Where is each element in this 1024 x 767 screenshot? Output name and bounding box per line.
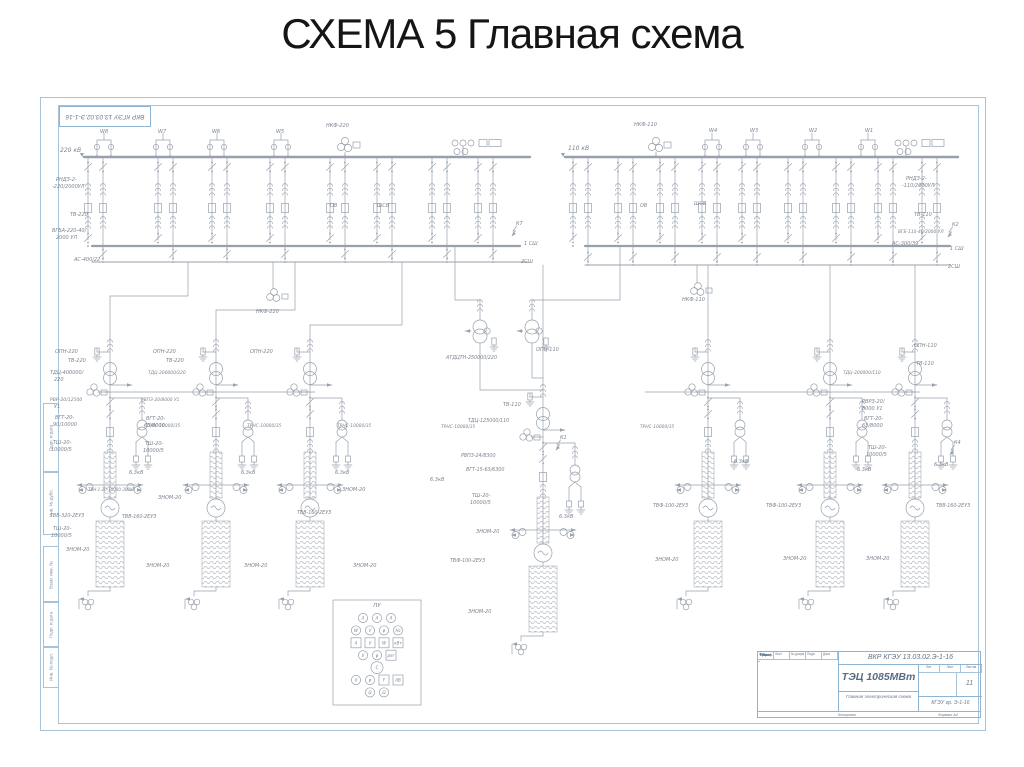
schematic-label: 6.3кВ [857,467,872,473]
schematic-label: ТДЦ-125000/110 [468,418,509,424]
schematic-label: V [362,653,365,658]
schematic-label: ВГТ-15-63/6300 [466,467,504,473]
schematic-label: ОПН-220 [55,349,78,355]
schematic-label: φ [376,653,379,658]
schematic-label: РВРЗ-20/ [862,399,886,405]
schematic-label: ОПН-220 [153,349,176,355]
schematic-label: А [354,640,358,645]
schematic-label: ЗНОМ-20 [342,487,365,493]
autotransformers [465,300,550,351]
schematic-label: -110/2000УЛ [902,183,935,189]
schematic-label: А [389,616,393,621]
schematic-label: Hz [395,628,401,633]
schematic-label: ТВ-220 [166,358,184,364]
schematic-label: Ω [367,690,372,695]
schematic-label: ТВФ-100-2ЕУЗ [450,558,485,564]
schematic-label: 6.3кВ [934,462,949,468]
schematic-label: 6.3кВ [430,477,445,483]
schematic-label: А [375,616,379,621]
schematic-label: F [383,678,386,683]
schematic-label: ТВФ-100-2ЕУЗ [766,503,801,509]
schematic-label: 10000/5 [866,452,887,458]
schematic-label: ТВ-110 [503,402,521,408]
schematic-label: ТВВ-160-2ЕУЗ [297,510,331,516]
schematic-label: ЗНОМ-20 [146,563,169,569]
schematic-label: 10000/5 [470,500,491,506]
sheet-header: Лит.ЛистЛистов [919,665,982,673]
schematic-label: РНДЗ-2- [56,177,77,183]
schematic-label: ТВ-220 [68,358,86,364]
schematic-label: НКФ-110 [682,297,705,303]
schematic-label: ЗНОМ-20 [655,557,678,563]
schematic-label: 1 СШ [524,241,538,247]
schematic-label: ТШ-20- [868,445,887,451]
schematic-label: φ [383,628,386,633]
revision-row: Утв. [758,652,760,662]
schematic-label: ЗНОМ-20 [244,563,267,569]
schematic-label: ЗНОМ-20 [66,547,89,553]
schematic-label: ОПН-110 [914,343,937,349]
schematic-label: ТВН-1-20-10000-300У3 [88,487,135,492]
schematic-label: 63/8000 [144,423,165,429]
schematic-label: ТВВ-160-2ЕУЗ [122,514,156,520]
schematic-label: 6.3кВ [559,514,574,520]
schematic-label: 90/10000 [53,422,77,428]
copied-label: Копировал [838,713,856,717]
object-name: ТЭЦ 1085МВт [839,665,919,691]
schematic-label: W6 [212,129,220,135]
schematic-label: ШСВ [694,201,707,207]
title-block-footer: Копировал Формат А4 [758,711,980,718]
title-block: Изм.Лист№ докум.Подп.Дата Разраб.Пров.Ре… [757,651,981,718]
schematic-label: ЗНОМ-20 [783,556,806,562]
schematic-label: ТВФ-100-2ЕУЗ [653,503,688,509]
schematic-label: 220 кВ [60,147,81,154]
schematic-label: РВР-20/12500 [50,397,82,403]
schematic-label: W8 [100,129,108,135]
schematic-label: ОВ [640,203,648,209]
schematic-label: ВГБ-110-40/2000 УЛ [898,229,944,235]
schematic-label: кВт [394,640,402,645]
schematic-label: 10000/5 [51,447,72,453]
schematic-label: ВГТ-20- [55,415,74,421]
schematic-label: ЗНОМ-20 [158,495,181,501]
schematic-label: ТВ-220 [70,212,88,218]
schematic-label: V [355,678,358,683]
schematic-label: ШСВ [377,203,390,209]
schematic-label: АВ [394,678,401,683]
schematic-label: С [376,665,379,670]
schematic-label: ОПН-220 [250,349,273,355]
feeder-bays [85,156,941,266]
schematic-label: φ [369,678,372,683]
schematic-label: -220/2000УЛ [52,184,85,190]
schematic-label: ВГТ-20- [864,416,883,422]
schematic-label: W7 [158,129,167,135]
schematic-label: ТРНС-10000/35 [337,423,372,429]
schematic-label: НКФ-110 [634,122,657,128]
schematic-label: ТВВ-320-2ЕУЗ [50,513,84,519]
title-block-right: Лит.ЛистЛистов 11 КГЭУ гр. Э-1-16 [919,665,982,711]
schematic-label: К1 [560,435,567,441]
schematic-label: АТДЦТН-250000/220 [445,355,497,361]
schematic-label: ТРНС-10000/35 [247,423,282,429]
schematic-label: 63/8000 [862,423,883,429]
schematic-label: W5 [276,129,284,135]
schematic-label: V [369,628,372,633]
unit-bays [77,340,957,655]
schematic-label: ОВ [330,203,338,209]
schematic-label: ТДЦ-400000/ [50,370,85,376]
schematic-label: НКФ-220 [326,123,349,129]
schematic-label: 1 СШ [950,246,964,252]
schematic-label: 2000 УЛ [56,235,77,241]
schematic-label: ОПН-110 [536,347,559,353]
document-title: Главная электрическая схема [839,691,919,711]
format-label: Формат А4 [938,713,958,717]
schematic-label: 8000 У1 [862,406,883,412]
schematic-label: W [354,628,359,633]
schematic-label: 220 [54,377,64,383]
pu-panel: ПУАААWVφHzАVWкВтVφрегСVφFАВΩΩ [333,600,421,705]
document-number: ВКР КГЭУ 13.03.02.Э-1-16 [839,652,982,665]
schematic-label: РВПЗ-20/8000 У1 [141,397,180,403]
schematic-label: W3 [750,128,758,134]
schematic-label: Ω [381,690,386,695]
schematic-label: ТДЦ-200000/220 [148,370,186,376]
schematic-label: ЗНОМ-20 [353,563,376,569]
schematic-label: ТДЦ-200000/110 [843,370,881,376]
schematic-label: 10000/5 [143,448,164,454]
schematic-label: ЗНОМ-20 [468,609,491,615]
lit-grid [919,673,957,696]
schematic-label: РВПЗ-24/8300 [461,453,496,459]
schematic-label: W4 [709,128,717,134]
schematic-label: W [382,640,387,645]
schematic-label: НКФ-220 [256,309,279,315]
schematic-label: ТШ-20- [53,526,72,532]
schematic-label: К7 [516,221,524,227]
schematic-label: V [369,640,372,645]
organization: КГЭУ гр. Э-1-16 [919,696,982,711]
schematic-label: РНДЗ-2- [906,176,927,182]
schematic-label: 2СШ [948,264,961,270]
schematic-label: W1 [865,128,873,134]
schematic-label: А [361,616,365,621]
schematic-label: АС-300/39 [891,241,918,247]
schematic-label: W2 [809,128,817,134]
schematic-label: 10000/5 [51,533,72,539]
schematic-label: ЗНОМ-20 [866,556,889,562]
schematic-label: ТШ-20- [53,440,72,446]
schematic-label: ТРНС-10000/35 [441,424,476,430]
schematic-label: 6.3кВ [241,470,256,476]
schematic-label: 6.3кВ [335,470,350,476]
schematic-label: рег [386,653,395,658]
schematic-label: ВГБА-220-40/ [52,228,88,234]
schematic-label: ПУ [373,603,381,609]
schematic-label: ТВВ-160-2ЕУЗ [936,503,970,509]
schematic-label: К2 [952,222,959,228]
vt-clusters [267,137,944,301]
line-bays [94,133,877,157]
schematic-label: ТШ-20- [472,493,491,499]
schematic-label: 110 кВ [568,145,589,152]
connection-routes [104,246,920,392]
schematic-label: 6.3кВ [129,470,144,476]
schematic-label: 6.3кВ [734,459,749,465]
schematic-label: ВГТ-20- [146,416,165,422]
schematic-label: ЗНОМ-20 [476,529,499,535]
schematic-label: ТРНС-10000/35 [640,424,675,430]
schematic-label: ТВ-110 [914,212,932,218]
schematic-label: ТШ-20- [145,441,164,447]
sheet-number: 11 [957,674,982,696]
schematic-label: У1 [54,404,60,410]
schematic-label: АС-400/22 [73,257,100,263]
schematic-label: 2СШ [521,259,534,265]
title-block-revision-grid: Изм.Лист№ докум.Подп.Дата Разраб.Пров.Ре… [758,652,839,711]
schematic-label: К4 [954,440,961,446]
schematic-label: ТВ-110 [916,361,934,367]
